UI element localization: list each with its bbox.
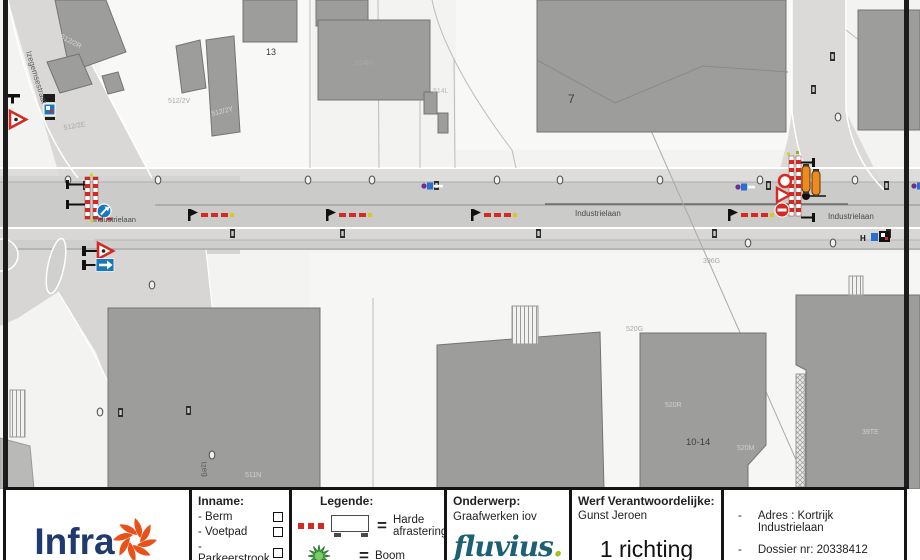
- house-number: 10-14: [686, 437, 710, 448]
- street-label: Industrielaan: [93, 215, 136, 224]
- legend-panel: Legende: = Harde afrastering = Boom: [289, 490, 444, 560]
- info-item: - Dossier nr: 20338412: [730, 544, 898, 556]
- inname-item: - Parkeerstrook: [198, 541, 283, 560]
- inname-title: Inname:: [198, 494, 283, 508]
- infra-logo-text: Infra: [34, 521, 114, 560]
- inname-item: - Voetpad: [198, 526, 283, 538]
- orange-work-sign: [802, 164, 810, 194]
- info-item: - Adres : Kortrijk Industrielaan: [730, 510, 898, 534]
- one-way-sign: [96, 259, 114, 272]
- werf-panel: Werf Verantwoordelijke: Gunst Jeroen 1 r…: [569, 490, 721, 560]
- frame-right: [904, 0, 909, 489]
- parcel-label: 511N: [245, 472, 261, 479]
- no-entry-sign: [775, 203, 789, 217]
- street-label: Industrielaan: [828, 212, 874, 221]
- building-10-14: [640, 333, 766, 489]
- building-512-2Y: [206, 36, 240, 136]
- onderwerp-title: Onderwerp:: [453, 494, 563, 508]
- parcel-label: 520G: [626, 326, 643, 333]
- werf-note: 1 richting: [578, 536, 715, 560]
- werf-title: Werf Verantwoordelijke:: [578, 494, 715, 508]
- parcel-label: 514M: [355, 60, 373, 67]
- building-511N: [108, 308, 320, 489]
- checkbox: [273, 527, 283, 537]
- onderwerp-line: Graafwerken iov: [453, 511, 563, 523]
- barrier-candystripe: [85, 177, 90, 219]
- street-label: Industrielaan: [575, 209, 621, 218]
- building-39TE: [796, 295, 920, 489]
- house-number: 7: [568, 92, 575, 106]
- legend-row-tree: = Boom: [298, 544, 438, 560]
- parcel-label: 512/2V: [168, 98, 191, 105]
- signalization-plan-page: Izegemsestraat Izeg Industrielaan Indust…: [0, 0, 920, 560]
- building-13: [243, 0, 297, 42]
- barrier-candystripe: [796, 156, 801, 216]
- inname-panel: Inname: - Berm - Voetpad - Parkeerstrook…: [189, 490, 289, 560]
- site-plan-map: Izegemsestraat Izeg Industrielaan Indust…: [0, 0, 920, 489]
- parcel-label: 520M: [737, 445, 755, 452]
- info-panel: - Adres : Kortrijk Industrielaan - Dossi…: [721, 490, 904, 560]
- building-bottom-mid: [437, 332, 604, 489]
- onderwerp-panel: Onderwerp: Graafwerken iov fluvius.: [444, 490, 569, 560]
- inname-item: - Berm: [198, 511, 283, 523]
- hydrant-label: H: [860, 234, 866, 243]
- fluvius-logo: fluvius.: [453, 529, 563, 560]
- parcel-label: 520R: [665, 402, 682, 409]
- infra-pinwheel-icon: [109, 514, 161, 560]
- werf-name: Gunst Jeroen: [578, 510, 715, 522]
- red-dash-icon: [298, 523, 325, 529]
- infra-logo: Infra: [6, 490, 189, 560]
- checkbox: [273, 548, 283, 558]
- legend-title: Legende:: [298, 494, 438, 508]
- checkbox: [273, 512, 283, 522]
- fence-icon: [331, 515, 371, 537]
- title-block: Infra Inname: - B: [3, 487, 907, 560]
- house-number: 13: [266, 47, 276, 57]
- parcel-label: 514L: [433, 88, 449, 95]
- tree-icon: [307, 544, 331, 560]
- parcel-label: 39TE: [862, 429, 879, 436]
- legend-row-fence: = Harde afrastering: [298, 514, 438, 538]
- building-7: [537, 0, 786, 132]
- parcel-label: 396G: [703, 258, 720, 265]
- frame-left: [3, 0, 8, 489]
- red-ring-sign: [779, 175, 791, 187]
- orange-work-sign: [812, 169, 820, 196]
